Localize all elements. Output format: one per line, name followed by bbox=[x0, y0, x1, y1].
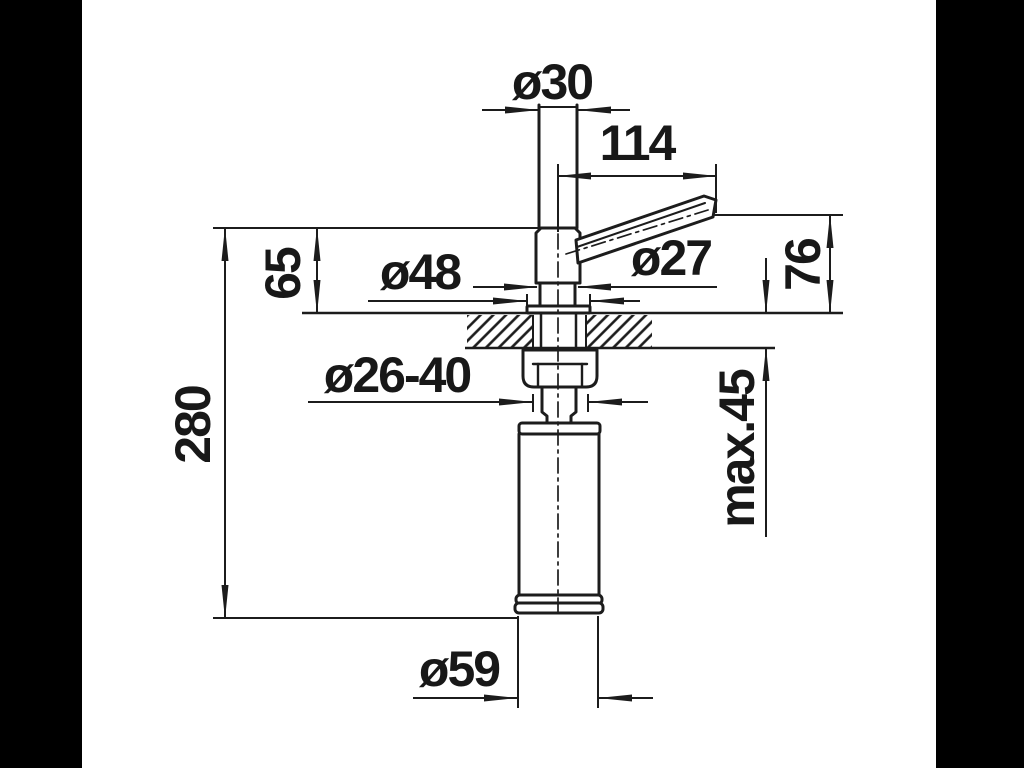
dim-label-bottle-diameter: ø59 bbox=[419, 644, 499, 694]
letterbox-left bbox=[0, 0, 82, 768]
dim-label-max-thickness: max.45 bbox=[712, 370, 762, 528]
dim-label-spout-reach: 114 bbox=[600, 118, 675, 168]
dim-label-flange-diameter: ø48 bbox=[380, 247, 460, 297]
dim-label-spout-height: 76 bbox=[778, 239, 828, 291]
lower-shank-right bbox=[571, 387, 576, 423]
dispenser-outline bbox=[515, 105, 716, 616]
dim-label-overall-height: 280 bbox=[168, 386, 218, 463]
counter-hatch-left bbox=[467, 315, 533, 347]
bottle-cap bbox=[519, 423, 600, 434]
lower-shank-left bbox=[542, 387, 547, 423]
letterbox-right bbox=[936, 0, 1024, 768]
dim-label-head-height: 65 bbox=[258, 248, 308, 300]
dim-label-head-diameter: ø27 bbox=[631, 233, 711, 283]
countertop-section bbox=[302, 313, 843, 348]
bottle-rim-2 bbox=[515, 603, 603, 613]
dim-label-hole-diameter: ø26-40 bbox=[324, 350, 470, 400]
dim-label-shaft-diameter: ø30 bbox=[512, 57, 592, 107]
drawing-page: ø30 114 65 ø48 ø27 76 280 ø26-40 max.45 … bbox=[0, 0, 1024, 768]
drawing-canvas bbox=[0, 0, 1024, 768]
counter-hatch-right bbox=[586, 315, 652, 347]
locknut bbox=[523, 350, 597, 387]
